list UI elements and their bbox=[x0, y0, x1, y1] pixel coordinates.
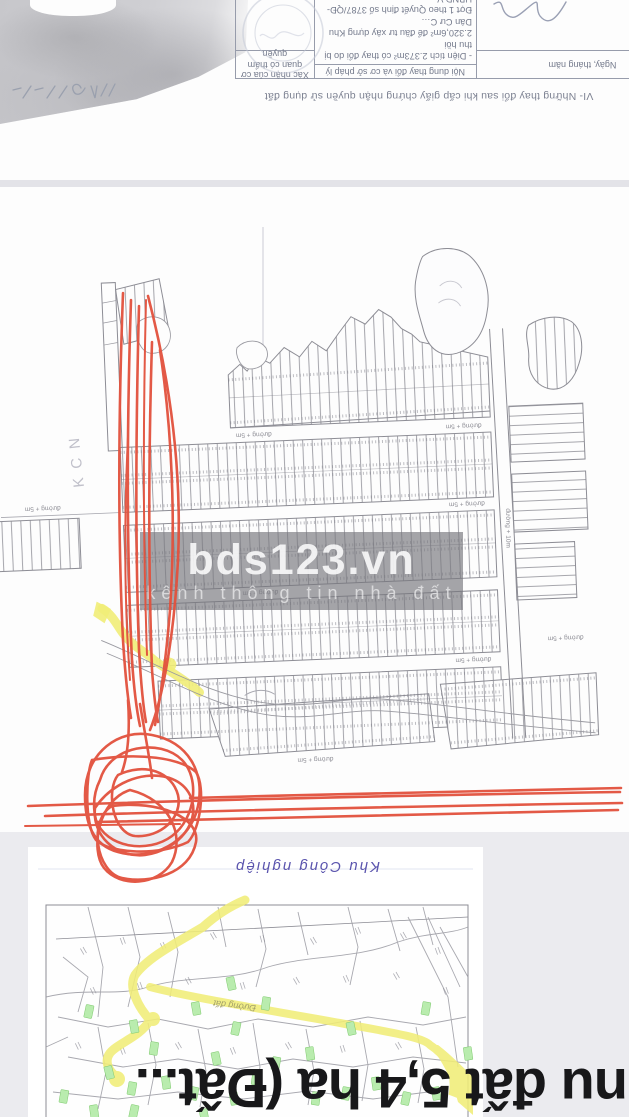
entry-line: 2.320,6m² để đầu tư xây dựng Khu Dân Cư … bbox=[319, 15, 472, 38]
road-label: đường + 5m bbox=[297, 755, 333, 763]
listing-photo-view: VI- Những thay đổi sau khi cấp giấy chứn… bbox=[0, 0, 629, 1117]
cadastral-map-drawing: KCN đường + 5m bbox=[0, 187, 629, 832]
road-label: đường + 5m bbox=[449, 499, 485, 507]
table-col-date: Ngày, tháng năm bbox=[476, 0, 629, 78]
table-cell-confirm bbox=[236, 0, 314, 50]
road-label: đường + 5m bbox=[446, 421, 482, 429]
watermark: bds123.vn kênh thông tin nhà đất bbox=[140, 532, 463, 610]
table-col-content: Nội dung thay đổi và cơ sở pháp lý - Diệ… bbox=[314, 0, 476, 78]
watermark-brand: bds123.vn bbox=[187, 539, 415, 581]
photo-document-page[interactable]: VI- Những thay đổi sau khi cấp giấy chứn… bbox=[0, 0, 629, 180]
map-tilt-group: đường + 5m bbox=[0, 243, 599, 776]
road-label-vertical: đường + 10m bbox=[504, 508, 511, 548]
table-header-content: Nội dung thay đổi và cơ sở pháp lý bbox=[315, 65, 476, 79]
document-section-heading: VI- Những thay đổi sau khi cấp giấy chứn… bbox=[229, 90, 629, 102]
handwritten-signature bbox=[490, 0, 570, 40]
road-label: đường + 5m bbox=[236, 430, 272, 438]
watermark-tagline: kênh thông tin nhà đất bbox=[146, 583, 456, 604]
handwritten-zone-label: Khu Công nghiệp bbox=[234, 858, 380, 875]
road-label: đường + 5m bbox=[455, 655, 491, 663]
section-divider bbox=[0, 180, 629, 187]
photo-subdivision-map[interactable]: KCN đường + 5m bbox=[0, 187, 629, 832]
table-cell-date bbox=[477, 0, 629, 50]
entry-line: - Diện tích 2.373m² có thay đổi do bị th… bbox=[319, 38, 472, 61]
flipped-document: VI- Những thay đổi sau khi cấp giấy chứn… bbox=[0, 0, 629, 180]
zone-label-kcn: KCN bbox=[65, 428, 88, 488]
irregular-parcel bbox=[413, 247, 490, 356]
handwritten-date-note bbox=[11, 74, 119, 104]
table-header-date: Ngày, tháng năm bbox=[477, 50, 629, 78]
listing-title-flipped: nu đất 5,4 ha (Đất... bbox=[0, 1054, 629, 1117]
document-table: Ngày, tháng năm Nội dung thay đổi và cơ … bbox=[235, 0, 629, 79]
entry-line: Đợt 1 theo Quyết định số 3787/QĐ-UBND V… bbox=[319, 0, 472, 15]
road-label: đường + 5m bbox=[25, 504, 61, 512]
road-label: đường + 5m bbox=[547, 633, 583, 641]
table-cell-content: - Diện tích 2.373m² có thay đổi do bị th… bbox=[315, 0, 476, 65]
